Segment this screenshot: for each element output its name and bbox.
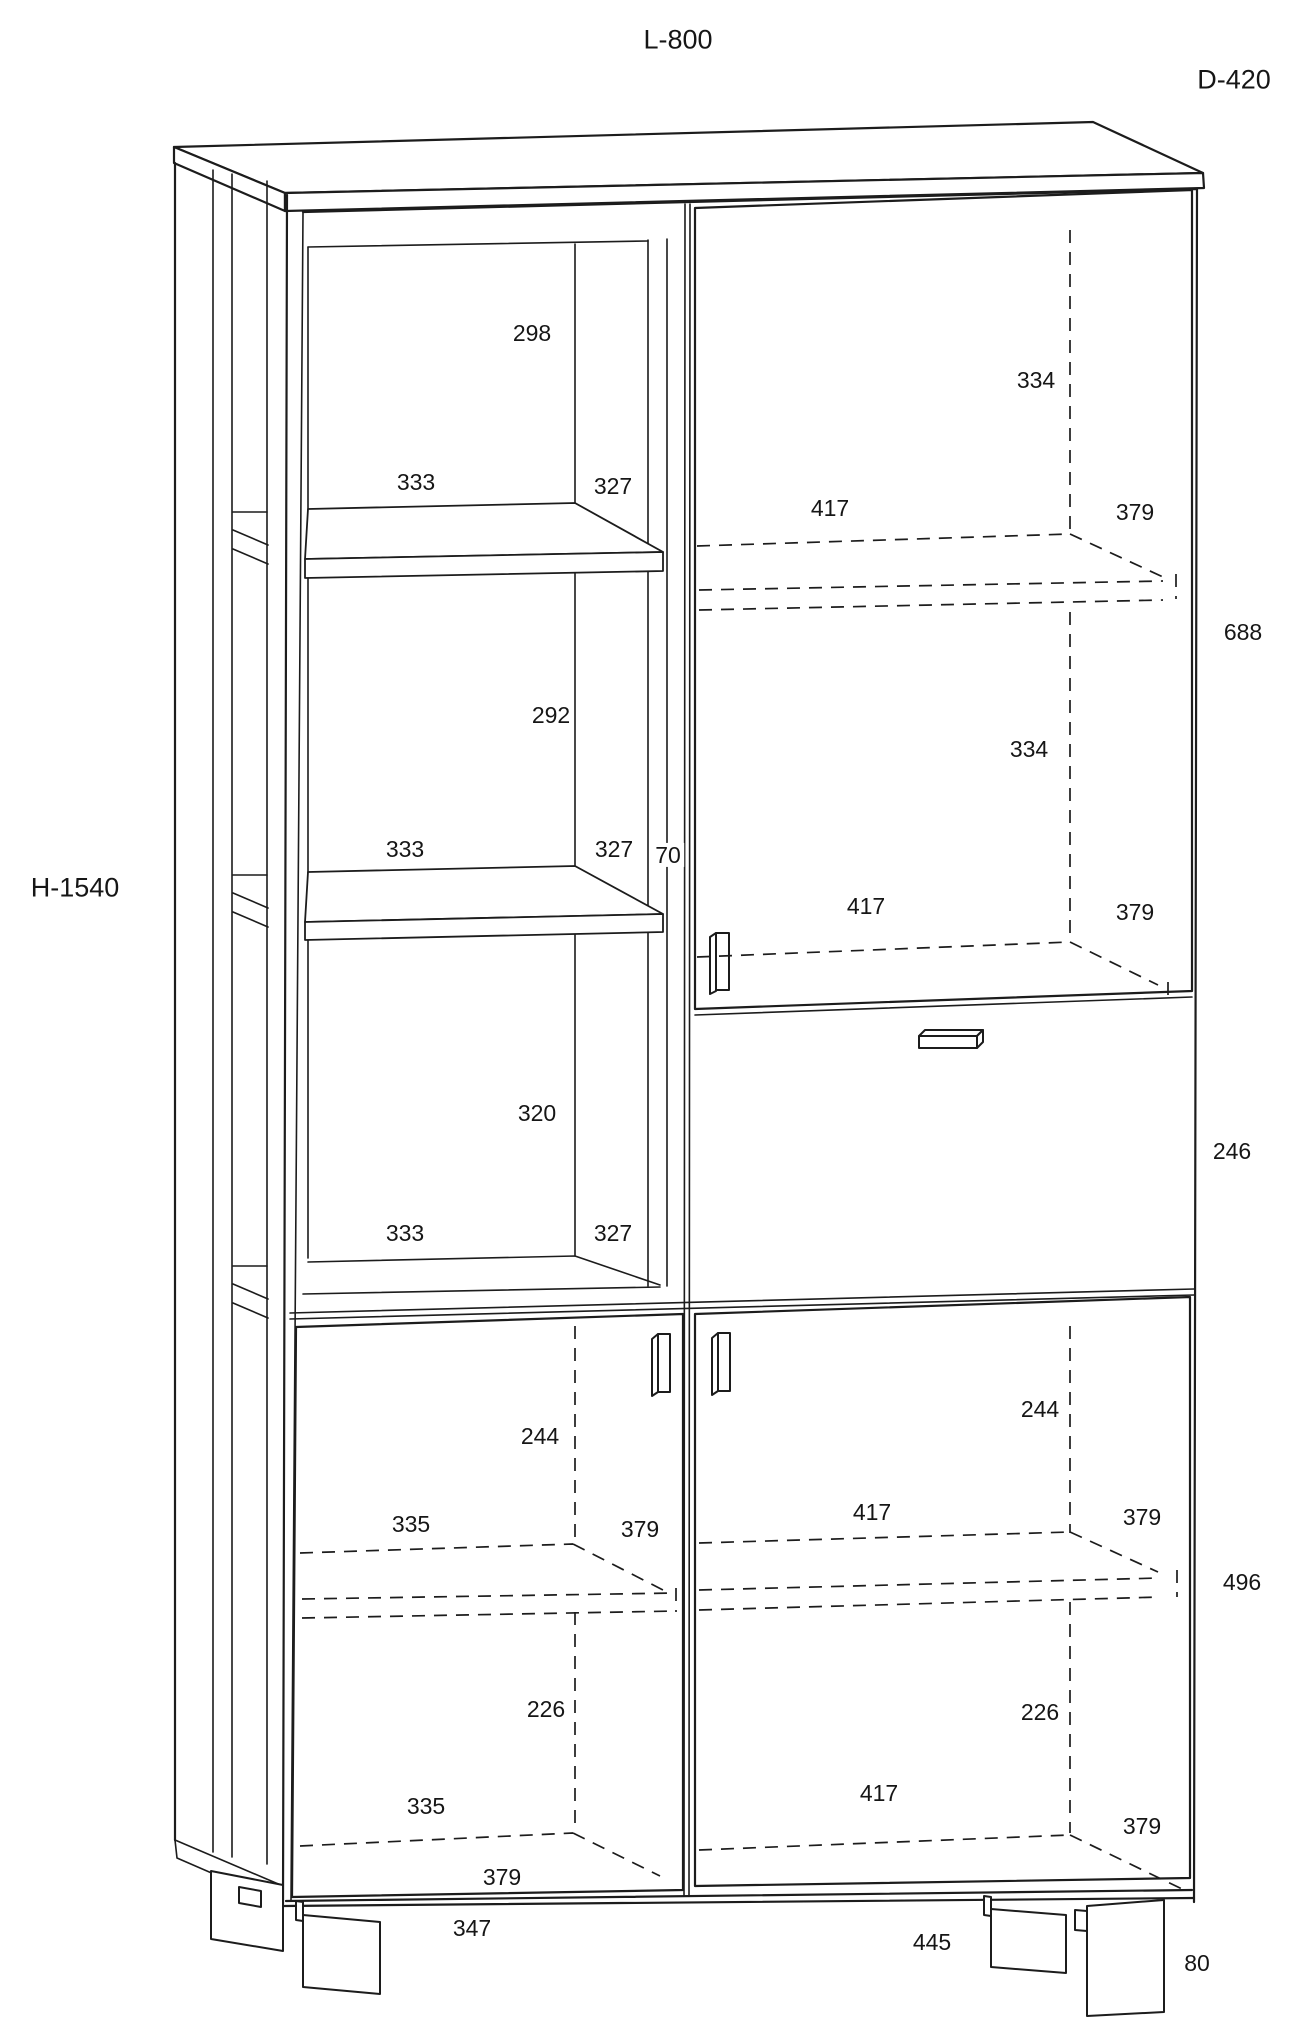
dim-246: 246 xyxy=(1210,1139,1254,1163)
dim-379-5: 379 xyxy=(480,1865,524,1889)
dim-244-right: 244 xyxy=(1018,1397,1062,1421)
dim-417-1: 417 xyxy=(808,496,852,520)
dim-333-1: 333 xyxy=(394,470,438,494)
dim-298: 298 xyxy=(510,321,554,345)
dim-496: 496 xyxy=(1220,1570,1264,1594)
dim-334-2: 334 xyxy=(1007,737,1051,761)
dim-244-left: 244 xyxy=(518,1424,562,1448)
dim-333-2: 333 xyxy=(383,837,427,861)
dim-226-right: 226 xyxy=(1018,1700,1062,1724)
dim-417-2: 417 xyxy=(844,894,888,918)
dim-417-3: 417 xyxy=(850,1500,894,1524)
technical-drawing-page: L-800 D-420 H-1540 298333327334417379688… xyxy=(0,0,1301,2028)
dim-327-3: 327 xyxy=(591,1221,635,1245)
dim-80: 80 xyxy=(1181,1951,1213,1975)
dim-335-2: 335 xyxy=(404,1794,448,1818)
dim-379-4: 379 xyxy=(1120,1505,1164,1529)
dim-327-1: 327 xyxy=(591,474,635,498)
dim-417-4: 417 xyxy=(857,1781,901,1805)
dim-292: 292 xyxy=(529,703,573,727)
dim-379-2: 379 xyxy=(1113,900,1157,924)
dim-226-left: 226 xyxy=(524,1697,568,1721)
dim-379-6: 379 xyxy=(1120,1814,1164,1838)
dim-688: 688 xyxy=(1221,620,1265,644)
dim-333-3: 333 xyxy=(383,1221,427,1245)
dim-335-1: 335 xyxy=(389,1512,433,1536)
dim-70: 70 xyxy=(652,843,684,867)
dim-379-3: 379 xyxy=(618,1517,662,1541)
dim-379-1: 379 xyxy=(1113,500,1157,524)
dim-327-2: 327 xyxy=(592,837,636,861)
dim-347: 347 xyxy=(450,1916,494,1940)
dim-320: 320 xyxy=(515,1101,559,1125)
dimension-labels-layer: 2983333273344173796882923333277033441737… xyxy=(0,0,1301,2028)
dim-334-1: 334 xyxy=(1014,368,1058,392)
dim-445: 445 xyxy=(910,1930,954,1954)
